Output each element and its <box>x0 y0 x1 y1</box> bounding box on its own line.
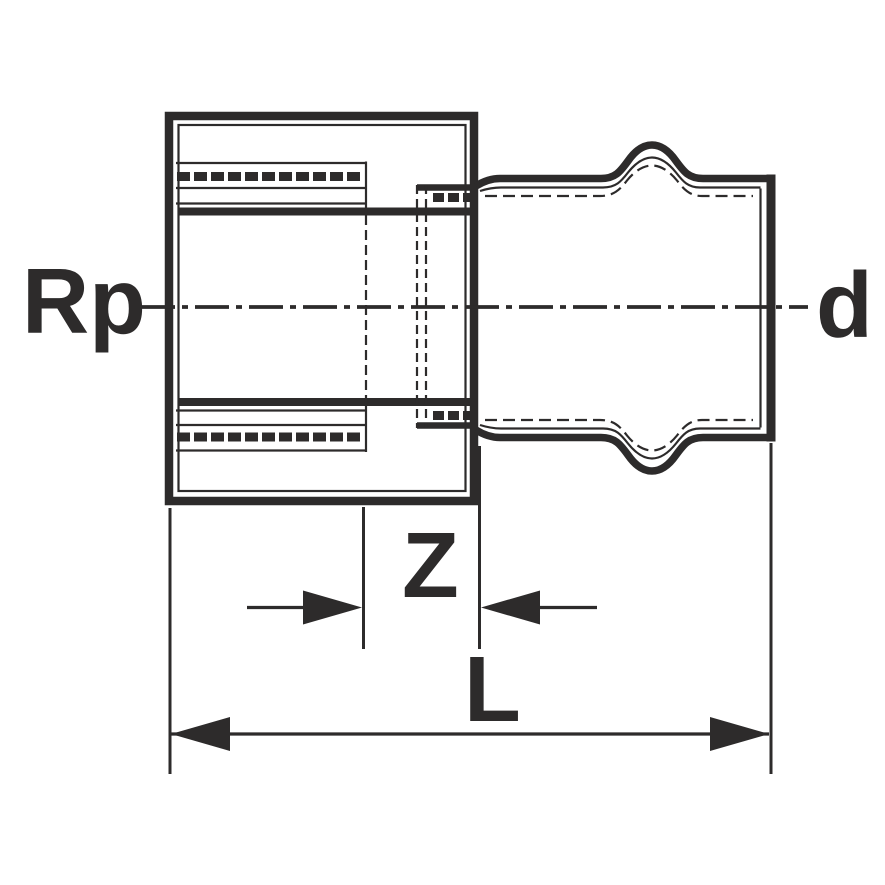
z-arrow-left <box>303 591 362 625</box>
l-arrow-left <box>171 717 230 751</box>
pipe-fitting-diagram: Z L Rp d <box>0 0 885 885</box>
dimension-z: Z <box>247 446 597 649</box>
label-d: d <box>816 253 873 357</box>
press-outer-bottom-with-bead <box>476 430 771 471</box>
l-arrow-right <box>710 717 769 751</box>
label-rp: Rp <box>22 249 146 353</box>
z-arrow-right <box>481 591 540 625</box>
press-outer-top-with-bead <box>476 145 771 186</box>
label-z: Z <box>402 513 459 617</box>
drawing-canvas: Z L Rp d <box>0 0 885 885</box>
label-l: L <box>464 637 521 741</box>
